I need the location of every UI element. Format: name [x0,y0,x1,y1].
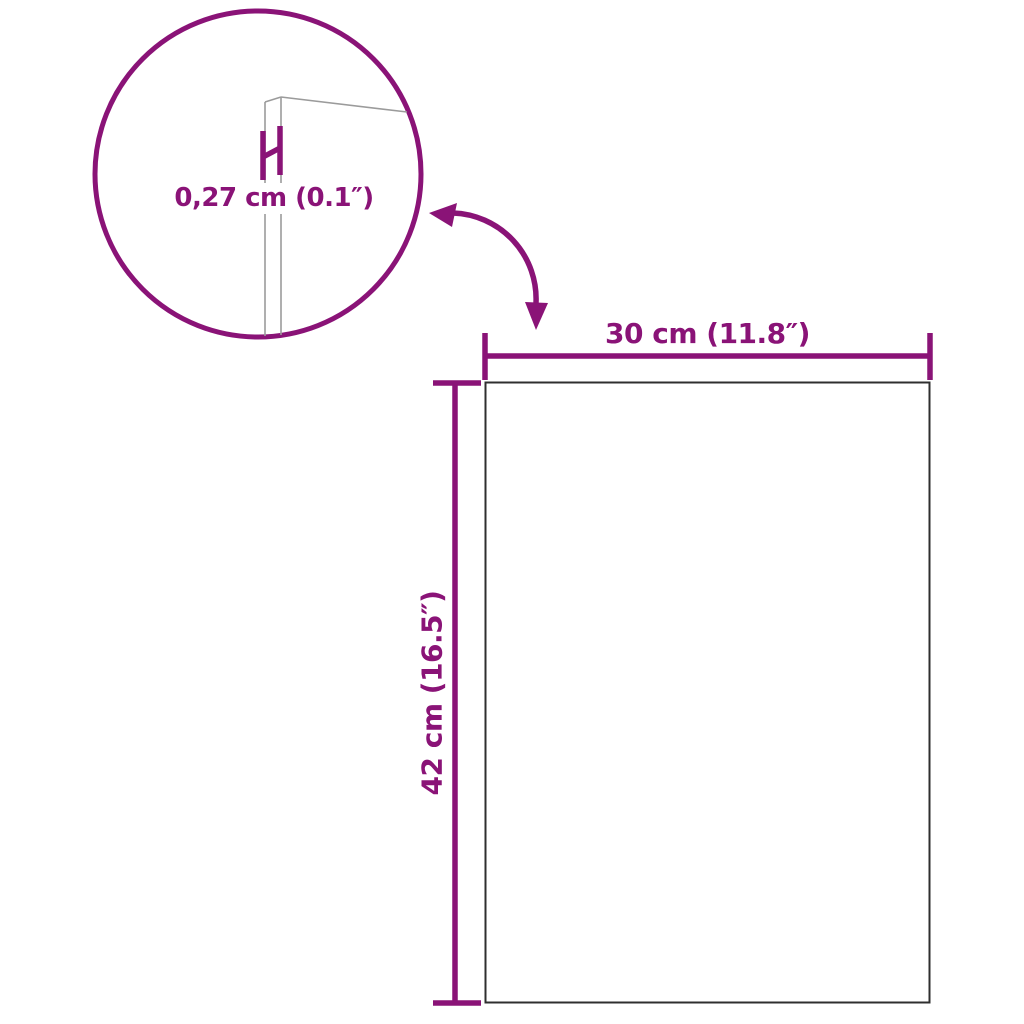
curved-arrow-head-left [429,203,457,227]
curved-arrow-shaft [453,213,536,303]
width-label: 30 cm (11.8″) [485,317,930,350]
height-label: 42 cm (16.5″) [416,591,449,796]
diagram-canvas [0,0,1024,1024]
dimension-diagram: 0,27 cm (0.1″) 30 cm (11.8″) 42 cm (16.5… [0,0,1024,1024]
curved-arrow-icon [429,203,548,330]
magnifier-circle [95,11,421,337]
product-panel [486,383,930,1003]
thickness-label: 0,27 cm (0.1″) [168,183,380,213]
